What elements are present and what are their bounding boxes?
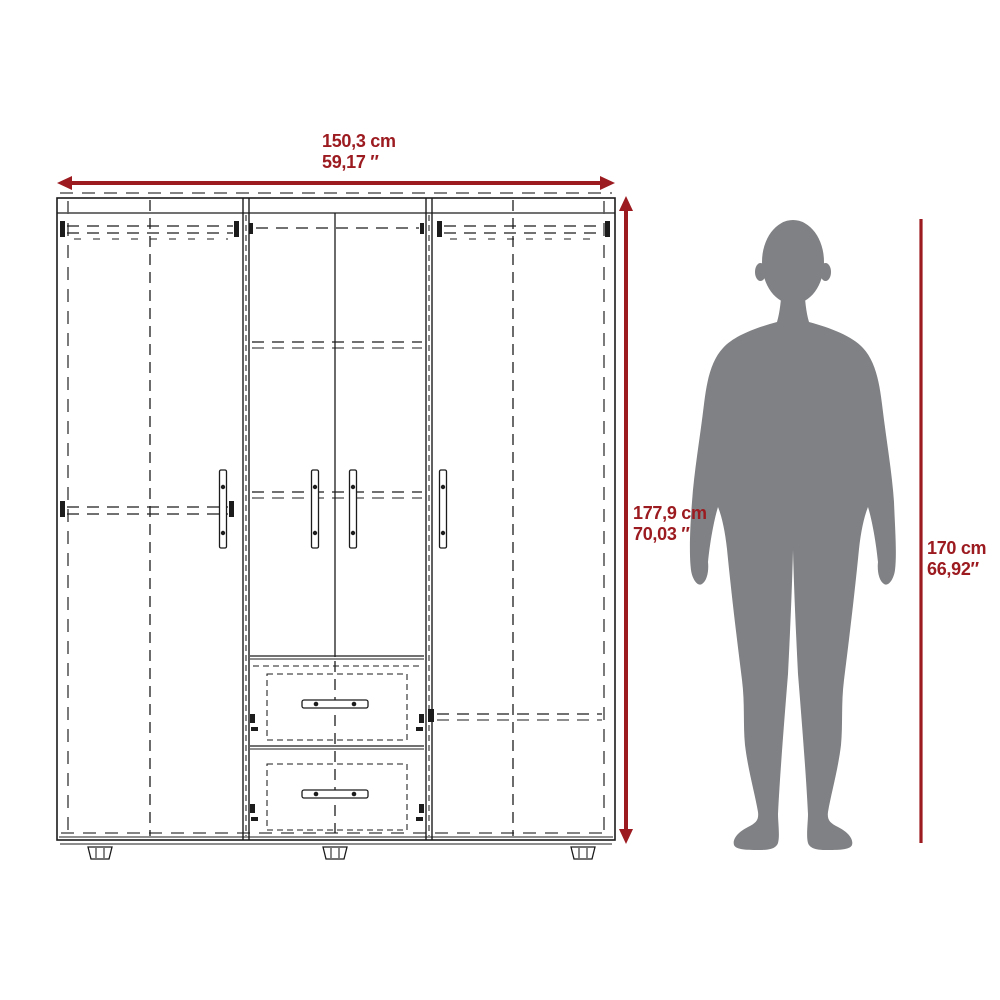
right-shelf bbox=[428, 709, 602, 722]
height-dimension-arrow bbox=[619, 196, 633, 844]
section-dividers bbox=[243, 198, 432, 840]
hanging-rod-mid-left bbox=[60, 501, 234, 517]
center-shelves bbox=[249, 223, 424, 498]
width-imperial: 59,17 ″ bbox=[322, 152, 396, 173]
wardrobe-feet bbox=[88, 847, 595, 859]
width-dimension-label: 150,3 cm 59,17 ″ bbox=[322, 131, 396, 173]
person-metric: 170 cm bbox=[927, 538, 986, 559]
height-imperial: 70,03 ″ bbox=[633, 524, 707, 545]
height-dimension-label: 177,9 cm 70,03 ″ bbox=[633, 503, 707, 545]
height-metric: 177,9 cm bbox=[633, 503, 707, 524]
door-gap-lines bbox=[150, 200, 513, 836]
drawer-1-handle bbox=[302, 700, 368, 708]
door-handle bbox=[440, 470, 447, 548]
silhouette-body bbox=[690, 286, 896, 850]
ear-right bbox=[820, 263, 831, 281]
door-handle bbox=[312, 470, 319, 548]
width-dimension-arrow bbox=[57, 176, 615, 190]
wardrobe-drawing bbox=[57, 193, 615, 859]
width-metric: 150,3 cm bbox=[322, 131, 396, 152]
person-height-label: 170 cm 66,92″ bbox=[927, 538, 986, 580]
foot bbox=[571, 847, 595, 859]
ear-left bbox=[755, 263, 766, 281]
drawer-slide-clips bbox=[250, 714, 424, 821]
wardrobe-dimension-diagram bbox=[0, 0, 1000, 1000]
foot bbox=[323, 847, 347, 859]
human-silhouette bbox=[690, 220, 896, 850]
diagram-canvas: 150,3 cm 59,17 ″ 177,9 cm 70,03 ″ 170 cm… bbox=[0, 0, 1000, 1000]
hanging-rod-top-right bbox=[437, 221, 610, 239]
door-handles bbox=[220, 470, 447, 548]
drawer-2-handle bbox=[302, 790, 368, 798]
door-handle bbox=[350, 470, 357, 548]
drawers bbox=[250, 656, 424, 830]
foot bbox=[88, 847, 112, 859]
person-imperial: 66,92″ bbox=[927, 559, 986, 580]
door-handle bbox=[220, 470, 227, 548]
